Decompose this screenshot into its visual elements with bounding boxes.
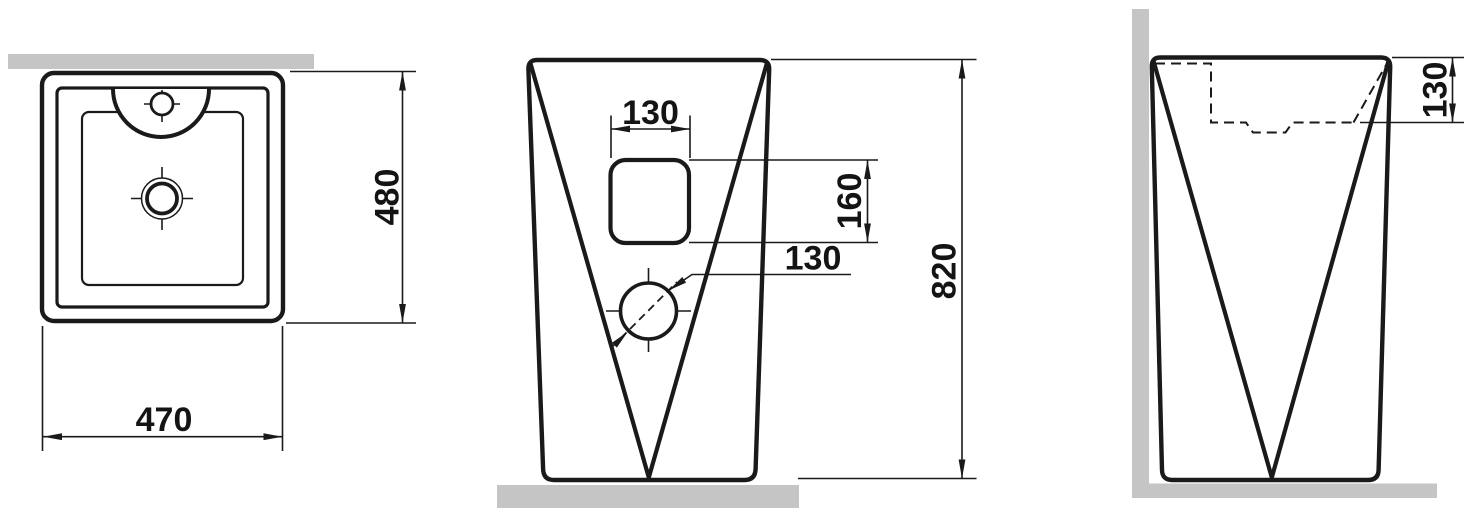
floor-section-bar <box>497 485 799 508</box>
dim-160-label: 160 <box>831 173 869 230</box>
dim-130-width-label: 130 <box>622 94 679 132</box>
arrowhead-right-icon <box>264 433 283 440</box>
drawing-canvas: 470 480 130 160 <box>0 0 1474 511</box>
front-view: 130 160 130 820 <box>497 60 977 509</box>
wall-section-bar-vertical <box>1132 9 1149 484</box>
arrowhead-down-icon <box>959 460 966 479</box>
faucet-hole <box>151 93 173 115</box>
dim-top-depth: 480 <box>286 72 416 324</box>
floor-section-bar <box>1132 484 1437 499</box>
arrowhead-left-icon <box>43 433 62 440</box>
top-view: 470 480 <box>8 54 416 451</box>
dim-820-label: 820 <box>926 243 964 300</box>
wall-section-bar <box>8 54 314 69</box>
square-mounting-hole <box>611 160 690 243</box>
drain-hole <box>147 184 177 214</box>
arrowhead-up-icon <box>399 72 406 91</box>
dim-130-depth-label: 130 <box>1417 62 1455 119</box>
side-view: 130 <box>1132 9 1464 498</box>
dim-480-label: 480 <box>369 169 407 226</box>
washbasin-technical-drawing: 470 480 130 160 <box>0 0 1474 511</box>
dim-470-label: 470 <box>136 401 193 439</box>
arrowhead-down-icon <box>399 304 406 323</box>
arrowhead-up-icon <box>959 60 966 79</box>
dim-top-width: 470 <box>43 326 283 451</box>
dim-130-diameter-label: 130 <box>785 240 842 278</box>
